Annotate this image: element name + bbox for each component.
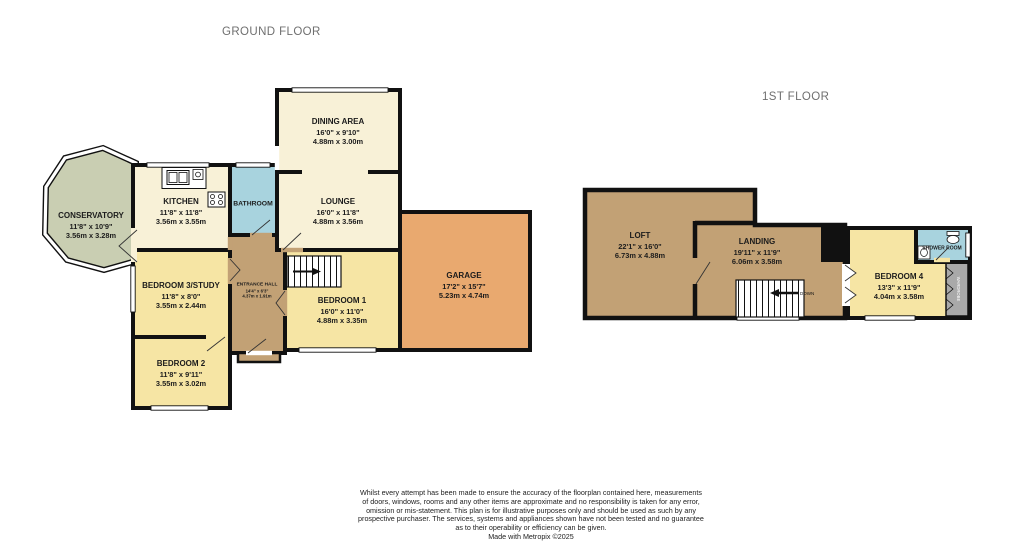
room-name: GARAGE (439, 271, 489, 282)
dining-window (292, 88, 388, 92)
bedroom3-door-gap (228, 258, 232, 284)
bedroom1-door-gap (283, 290, 287, 316)
room-name: BEDROOM 3/STUDY (142, 281, 220, 292)
room-metric: 6.73m x 4.88m (615, 251, 665, 261)
disclaimer: Whilst every attempt has been made to en… (331, 489, 731, 542)
room-imperial: 13'3" x 11'9" (874, 283, 924, 293)
conservatory-label: CONSERVATORY 11'8" x 10'9" 3.56m x 3.28m (58, 211, 124, 241)
room-imperial: 11'8" x 9'11" (156, 370, 206, 380)
bedroom4-label: BEDROOM 4 13'3" x 11'9" 4.04m x 3.58m (874, 272, 924, 302)
toilet-icon (947, 236, 959, 244)
room-name: BEDROOM 1 (317, 296, 367, 307)
room-imperial: 16'0" x 9'10" (312, 128, 365, 138)
bedroom2-label: BEDROOM 2 11'8" x 9'11" 3.55m x 3.02m (156, 359, 206, 389)
ground-floor-plan (45, 88, 530, 410)
made-with-credit: Made with Metropix ©2025 (331, 533, 731, 542)
room-name: KITCHEN (156, 197, 206, 208)
room-metric: 3.55m x 2.44m (142, 301, 220, 311)
landing-void (821, 227, 845, 262)
room-name: CONSERVATORY (58, 211, 124, 222)
room-name: LANDING (732, 237, 782, 248)
bedroom3-window (131, 266, 135, 312)
wardrobe-label: WARDROBE (956, 277, 961, 302)
room-metric: 4.37m x 1.91m (237, 294, 278, 299)
room-metric: 3.55m x 3.02m (156, 379, 206, 389)
room-name: LOFT (615, 231, 665, 242)
room-metric: 5.23m x 4.74m (439, 291, 489, 301)
room-imperial: 17'2" x 15'7" (439, 282, 489, 292)
floorplan-page: WARDROBE DOWN GROUND FLOOR 1ST FLOOR CON… (0, 0, 1024, 542)
staircase-down (736, 280, 804, 317)
garage-label: GARAGE 17'2" x 15'7" 5.23m x 4.74m (439, 271, 489, 301)
stairs-down-label: DOWN (800, 291, 814, 296)
bathroom-label: BATHROOM (233, 201, 273, 210)
kitchen-window (147, 163, 209, 167)
room-metric: 3.56m x 3.55m (156, 217, 206, 227)
shower-window (966, 233, 970, 257)
room-name: LOUNGE (313, 197, 363, 208)
room-name: DINING AREA (312, 117, 365, 128)
entrance-hall-label: ENTRANCE HALL 14'4" x 6'3" 4.37m x 1.91m (237, 283, 278, 300)
room-name: BEDROOM 2 (156, 359, 206, 370)
toilet-cistern (947, 232, 959, 236)
room-imperial: 11'8" x 8'0" (142, 292, 220, 302)
loft-label: LOFT 22'1" x 16'0" 6.73m x 4.88m (615, 231, 665, 261)
room-imperial: 22'1" x 16'0" (615, 242, 665, 252)
bedroom1-window (299, 348, 376, 352)
bathroom-window (236, 163, 270, 167)
bedroom4-window (865, 316, 915, 320)
room-metric: 4.88m x 3.56m (313, 217, 363, 227)
bedroom2-window (151, 406, 208, 410)
room-metric: 3.56m x 3.28m (58, 231, 124, 241)
room-imperial: 16'0" x 11'8" (313, 208, 363, 218)
shower-room-label: SHOWER ROOM (922, 246, 961, 253)
hob-icon (208, 192, 225, 207)
appliance-icon (193, 170, 203, 180)
ground-floor-title: GROUND FLOOR (222, 26, 321, 38)
sink-bowl-right (179, 173, 187, 183)
room-metric: 4.88m x 3.00m (312, 137, 365, 147)
bedroom3-label: BEDROOM 3/STUDY 11'8" x 8'0" 3.55m x 2.4… (142, 281, 220, 311)
room-imperial: 11'8" x 11'8" (156, 208, 206, 218)
room-metric: 4.04m x 3.58m (874, 292, 924, 302)
lounge-label: LOUNGE 16'0" x 11'8" 4.88m x 3.56m (313, 197, 363, 227)
room-imperial: 16'0" x 11'0" (317, 307, 367, 317)
dining-area-label: DINING AREA 16'0" x 9'10" 4.88m x 3.00m (312, 117, 365, 147)
room-name: BEDROOM 4 (874, 272, 924, 283)
bedroom1-label: BEDROOM 1 16'0" x 11'0" 4.88m x 3.35m (317, 296, 367, 326)
room-imperial: 19'11" x 11'9" (732, 248, 782, 258)
sink-bowl-left (169, 173, 177, 183)
lounge-dining-opening (302, 170, 368, 175)
room-imperial: 11'8" x 10'9" (58, 222, 124, 232)
dining-side-opening (275, 146, 279, 170)
first-floor-title: 1ST FLOOR (762, 91, 829, 103)
landing-label: LANDING 19'11" x 11'9" 6.06m x 3.58m (732, 237, 782, 267)
kitchen-hall-opening (228, 237, 232, 250)
kitchen-label: KITCHEN 11'8" x 11'8" 3.56m x 3.55m (156, 197, 206, 227)
floorplan-canvas: WARDROBE DOWN (0, 0, 1024, 542)
room-metric: 4.88m x 3.35m (317, 316, 367, 326)
room-name: SHOWER ROOM (922, 246, 961, 253)
room-name: BATHROOM (233, 201, 273, 210)
room-metric: 6.06m x 3.58m (732, 257, 782, 267)
